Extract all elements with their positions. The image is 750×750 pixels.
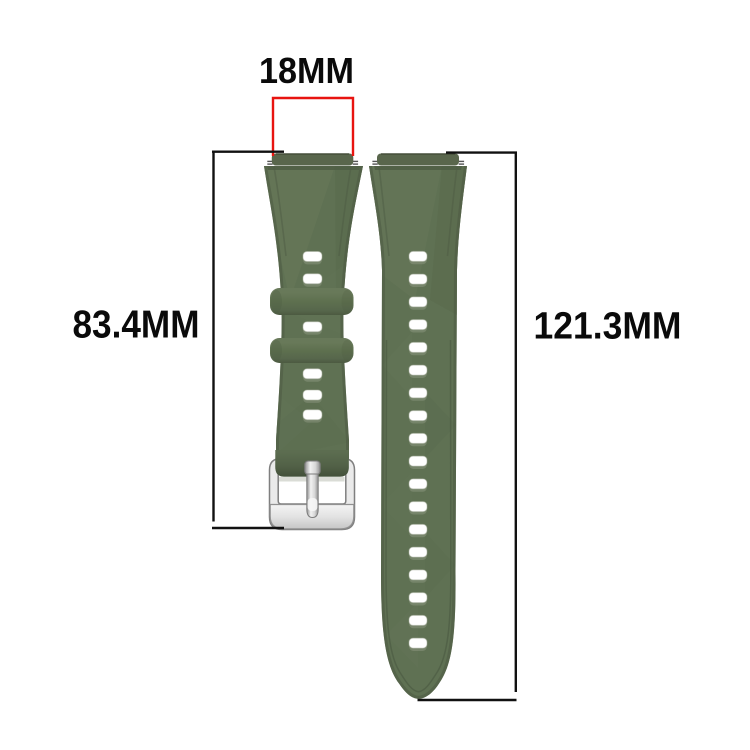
svg-text:18MM: 18MM [259, 50, 354, 91]
svg-text:121.3MM: 121.3MM [534, 306, 682, 348]
svg-text:83.4MM: 83.4MM [73, 304, 200, 347]
